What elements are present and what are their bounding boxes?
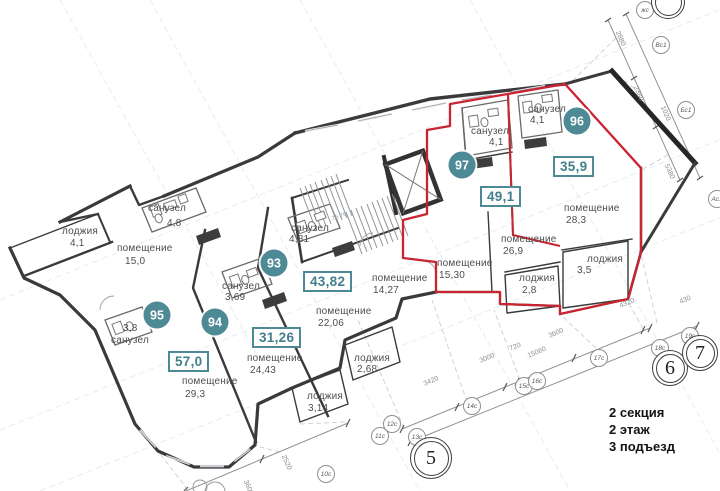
room-label: санузел bbox=[528, 104, 566, 115]
grid-axis-marker: Ас1 bbox=[708, 190, 720, 208]
grid-axis-marker-number: 7 bbox=[686, 339, 715, 368]
dimension-text: 3420 bbox=[423, 375, 440, 388]
apartment-number-badge: 94 bbox=[202, 309, 229, 336]
room-area-value: 3,69 bbox=[225, 292, 245, 303]
room-label: помещение bbox=[316, 306, 372, 317]
room-label: санузел bbox=[111, 335, 149, 346]
apartment-total-area-box: 57,0 bbox=[168, 351, 209, 372]
room-label: санузел bbox=[471, 126, 509, 137]
room-area-value: 15,30 bbox=[439, 270, 465, 281]
room-label: лоджия bbox=[587, 254, 623, 265]
dimension-text: 2380 bbox=[632, 85, 645, 102]
room-label: санузел bbox=[222, 281, 260, 292]
dimension-text: 430 bbox=[679, 295, 692, 306]
apartment-number-badge: 96 bbox=[564, 108, 591, 135]
room-label: помещение bbox=[437, 258, 493, 269]
room-label: помещение bbox=[501, 234, 557, 245]
dimension-text: 2880 bbox=[614, 30, 627, 47]
grid-axis-marker-large bbox=[651, 0, 685, 19]
section-line: 2 секция bbox=[609, 404, 675, 421]
grid-axis-marker-number bbox=[655, 0, 682, 16]
listing-info: 2 секция 2 этаж 3 подъезд bbox=[609, 404, 675, 455]
room-area-value: 29,3 bbox=[185, 389, 205, 400]
dimension-text: 5380 bbox=[663, 163, 676, 180]
room-label: лоджия bbox=[519, 273, 555, 284]
room-area-value: 22,06 bbox=[318, 318, 344, 329]
room-label: лоджия bbox=[354, 353, 390, 364]
grid-axis-marker: 12с bbox=[383, 415, 401, 433]
grid-axis-marker-large: 5 bbox=[410, 437, 452, 479]
grid-axis-marker-number: 6 bbox=[656, 354, 685, 383]
labels-overlay: 76 76 2 секция 2 этаж 3 подъезд санузел4… bbox=[0, 0, 720, 491]
dimension-text: 3000 bbox=[479, 352, 496, 365]
room-area-value: 4,1 bbox=[489, 137, 504, 148]
room-label: санузел bbox=[148, 203, 186, 214]
room-area-value: 26,9 bbox=[503, 246, 523, 257]
apartment-total-area-box: 49,1 bbox=[480, 186, 521, 207]
apartment-total-area-box: 43,82 bbox=[303, 271, 352, 292]
grid-axis-marker: 14с bbox=[463, 397, 481, 415]
room-area-value: 3,8 bbox=[123, 323, 138, 334]
stair-elevation-note: 76 76 bbox=[331, 212, 347, 223]
grid-axis-marker: Вс1 bbox=[652, 36, 670, 54]
room-area-value: 24,43 bbox=[250, 365, 276, 376]
floor-line: 2 этаж bbox=[609, 421, 675, 438]
apartment-total-area-box: 31,26 bbox=[252, 327, 301, 348]
room-area-value: 3,14 bbox=[308, 403, 328, 414]
dimension-text: 2520 bbox=[280, 454, 293, 471]
floorplan-canvas: 76 76 2 секция 2 этаж 3 подъезд санузел4… bbox=[0, 0, 720, 491]
room-area-value: 4,8 bbox=[167, 218, 182, 229]
room-label: помещение bbox=[182, 376, 238, 387]
entrance-line: 3 подъезд bbox=[609, 438, 675, 455]
dimension-text: 3600 bbox=[548, 327, 565, 340]
grid-axis-marker-number: 5 bbox=[414, 441, 449, 476]
dimension-text: 15060 bbox=[527, 346, 548, 360]
apartment-number-badge: 93 bbox=[261, 250, 288, 277]
apartment-number-badge: 97 bbox=[449, 152, 476, 179]
room-area-value: 4,1 bbox=[530, 115, 545, 126]
room-label: лоджия bbox=[62, 226, 98, 237]
room-area-value: 2,8 bbox=[522, 285, 537, 296]
grid-axis-marker: 17с bbox=[590, 349, 608, 367]
room-label: помещение bbox=[372, 273, 428, 284]
room-area-value: 15,0 bbox=[125, 256, 145, 267]
dimension-text: 1020 bbox=[659, 105, 672, 122]
grid-axis-marker: 10с bbox=[317, 465, 335, 483]
grid-axis-marker-large: 7 bbox=[682, 335, 718, 371]
grid-axis-marker: Бс1 bbox=[677, 101, 695, 119]
grid-axis-marker: 16с bbox=[528, 372, 546, 390]
room-label: помещение bbox=[117, 243, 173, 254]
dimension-text: 720 bbox=[509, 342, 522, 353]
dimension-text: 3600 bbox=[242, 479, 255, 491]
room-label: помещение bbox=[247, 353, 303, 364]
room-area-value: 3,5 bbox=[577, 265, 592, 276]
room-label: лоджия bbox=[307, 391, 343, 402]
room-label: санузел bbox=[291, 223, 329, 234]
apartment-total-area-box: 35,9 bbox=[553, 156, 594, 177]
dimension-text: 4320 bbox=[619, 297, 636, 310]
room-area-value: 2,68 bbox=[357, 364, 377, 375]
room-area-value: 4,1 bbox=[70, 238, 85, 249]
apartment-number-badge: 95 bbox=[144, 302, 171, 329]
room-area-value: 14,27 bbox=[373, 285, 399, 296]
room-area-value: 4,81 bbox=[289, 234, 309, 245]
room-label: помещение bbox=[564, 203, 620, 214]
room-area-value: 28,3 bbox=[566, 215, 586, 226]
